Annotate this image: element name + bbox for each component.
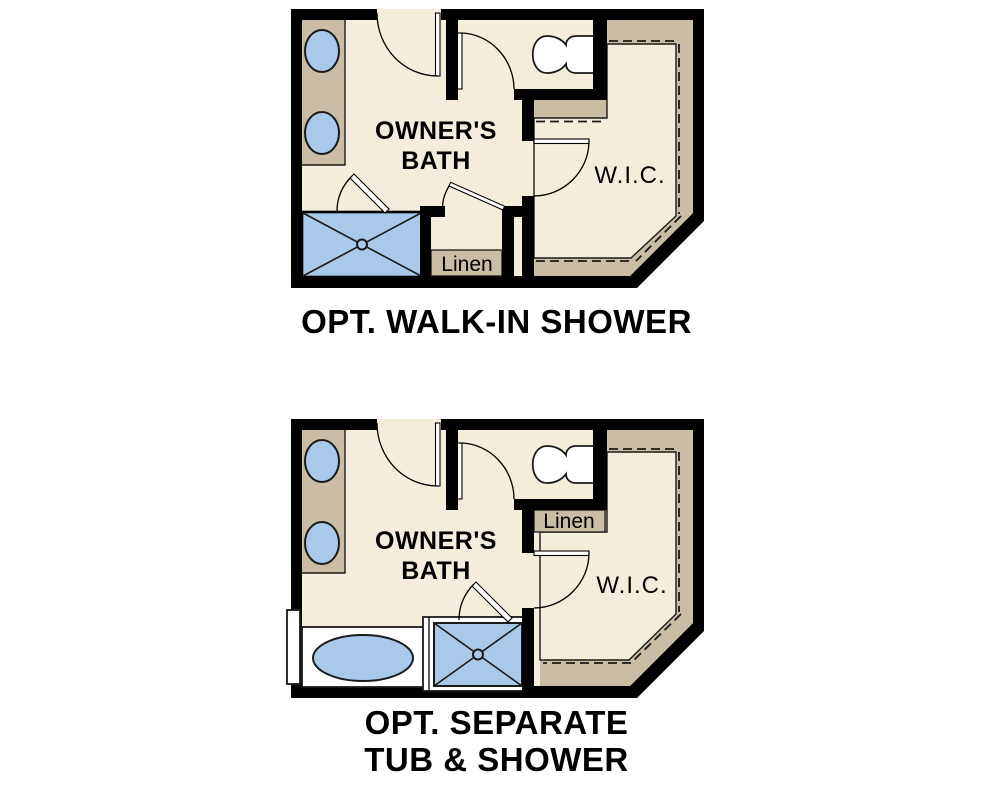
entry-opening: [377, 419, 441, 430]
toilet: [533, 446, 594, 483]
room-label-line2: BATH: [401, 147, 471, 175]
floor-plan-page: { "colors": { "background": "#ffffff", "…: [0, 0, 1000, 800]
shower-drain: [473, 650, 483, 660]
room-label-line2: BATH: [401, 557, 471, 585]
wic-label: W.I.C.: [596, 572, 667, 599]
door-leaf: [436, 13, 441, 76]
window: [287, 610, 300, 684]
sink-basin: [305, 112, 339, 154]
room-label-line1: OWNER'S: [375, 527, 497, 555]
floorplan-separate-tub-shower: OWNER'S BATH W.I.C. Linen: [283, 413, 710, 705]
sink-basin: [305, 440, 339, 482]
door-leaf: [436, 423, 441, 486]
linen-label: Linen: [441, 253, 492, 276]
linen-label: Linen: [543, 510, 594, 533]
sink-basin: [305, 522, 339, 564]
room-label-line1: OWNER'S: [375, 117, 497, 145]
entry-opening: [377, 9, 441, 20]
door-leaf: [458, 443, 463, 499]
caption-line1: OPT. SEPARATE: [283, 704, 710, 741]
caption-separate-tub-shower: OPT. SEPARATE TUB & SHOWER: [283, 704, 710, 778]
floorplan-walk-in-shower: OWNER'S BATH W.I.C. Linen: [283, 3, 710, 295]
caption-line2: TUB & SHOWER: [283, 741, 710, 778]
shower-drain: [357, 240, 367, 250]
sink-basin: [305, 30, 339, 72]
caption-walk-in-shower: OPT. WALK-IN SHOWER: [283, 303, 710, 340]
door-leaf: [534, 551, 589, 556]
wic-label: W.I.C.: [594, 162, 665, 189]
toilet: [533, 36, 594, 73]
door-leaf: [534, 139, 589, 144]
door-leaf: [458, 33, 463, 89]
tub-basin: [313, 635, 413, 681]
